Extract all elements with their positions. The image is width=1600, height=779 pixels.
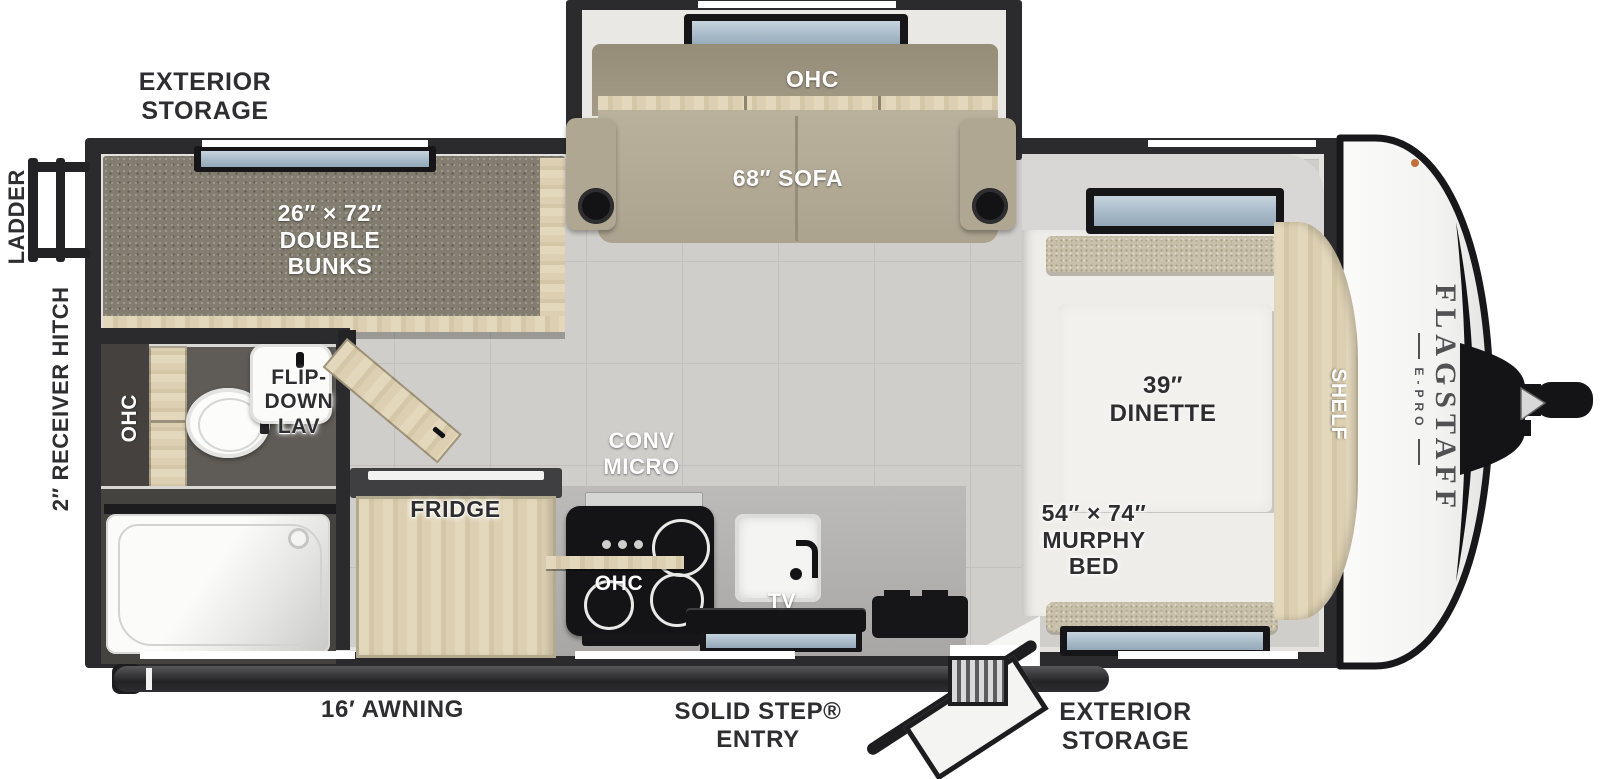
- sofa-cupholder-left: [578, 188, 614, 224]
- window-slit-slide: [698, 1, 896, 8]
- conv-micro-label: CONV MICRO: [579, 428, 704, 479]
- coffee-maker-tab-2: [922, 590, 948, 598]
- ohc-kitchen-label: OHC: [578, 572, 660, 596]
- dinette-window-glass: [1094, 196, 1276, 226]
- window-slit-front: [1148, 140, 1316, 147]
- fridge-label: FRIDGE: [383, 496, 528, 523]
- step-tread: [948, 656, 1008, 706]
- brand-series: E-PRO: [1412, 367, 1426, 430]
- bunk-front-shadow: [347, 332, 565, 339]
- brand-name: FLAGSTAFF: [1428, 284, 1462, 514]
- rear-ladder: [26, 156, 94, 268]
- receiver-hitch-label: 2″ RECEIVER HITCH: [48, 274, 74, 524]
- window-slit-bunk: [202, 140, 428, 147]
- bathroom-ohc-divider: [151, 420, 185, 423]
- brand-logo: FLAGSTAFF E-PRO: [1404, 269, 1470, 529]
- window-slit-bottom-1: [140, 651, 355, 659]
- ohc-bathroom-label: OHC: [118, 372, 142, 464]
- coffee-maker: [872, 596, 968, 638]
- brand-rule-left: [1418, 333, 1420, 359]
- sink-faucet-base: [790, 568, 802, 580]
- marker-light: [1411, 159, 1419, 167]
- ladder-rail-mid: [56, 158, 65, 262]
- receiver-hitch: [1460, 343, 1593, 475]
- murphy-bed-label: 54″ × 74″ MURPHY BED: [1012, 500, 1176, 580]
- murphy-window-glass: [1067, 632, 1263, 650]
- exterior-storage-front-label: EXTERIOR STORAGE: [1018, 698, 1233, 756]
- fridge-top-strip: [368, 471, 544, 480]
- sofa-ohc-gap-1: [744, 96, 747, 111]
- cooktop-knob-3: [634, 540, 643, 549]
- floorplan-canvas: FLAGSTAFF E-PRO EXTERIOR STORAGE LADDER …: [0, 0, 1600, 779]
- ladder-label: LADDER: [4, 162, 30, 272]
- bunk-window-glass: [201, 151, 429, 167]
- shower-drain: [288, 528, 309, 549]
- cooktop-drawer: [582, 634, 700, 646]
- awning-notch: [146, 668, 152, 690]
- shower-counter-edge: [104, 504, 336, 514]
- dinette-label: 39″ DINETTE: [1082, 372, 1244, 428]
- bunk-side-rail: [540, 158, 565, 330]
- ohc-sofa-label: OHC: [770, 66, 855, 93]
- shelf-label: SHELF: [1326, 342, 1350, 466]
- bathroom-top-wall: [101, 328, 350, 344]
- ladder-arm-top: [32, 162, 90, 172]
- flip-down-lav-label: FLIP- DOWN LAV: [236, 366, 362, 439]
- solid-step-entry-label: SOLID STEP® ENTRY: [648, 698, 868, 754]
- cooktop-knob-1: [602, 540, 611, 549]
- sofa-cupholder-right: [972, 188, 1008, 224]
- dinette-headboard-cushion: [1046, 236, 1278, 272]
- tv-label: TV: [756, 590, 808, 614]
- sofa-ohc-shelf: [598, 96, 998, 111]
- sofa-label: 68″ SOFA: [688, 165, 888, 192]
- ladder-arm-bottom: [32, 248, 90, 258]
- kitchen-window-glass: [706, 634, 856, 648]
- sofa-ohc-gap-2: [878, 96, 881, 111]
- cooktop-knob-2: [618, 540, 627, 549]
- brand-rule-right: [1418, 439, 1420, 465]
- double-bunks-label: 26″ × 72″ DOUBLE BUNKS: [225, 200, 435, 280]
- awning-label: 16′ AWNING: [285, 696, 500, 724]
- coffee-maker-tab-1: [884, 590, 910, 598]
- window-slit-bottom-2: [575, 651, 795, 659]
- exterior-storage-rear-label: EXTERIOR STORAGE: [95, 68, 315, 126]
- window-slit-bottom-3: [1118, 651, 1298, 659]
- kitchen-ohc-shelf: [546, 556, 684, 569]
